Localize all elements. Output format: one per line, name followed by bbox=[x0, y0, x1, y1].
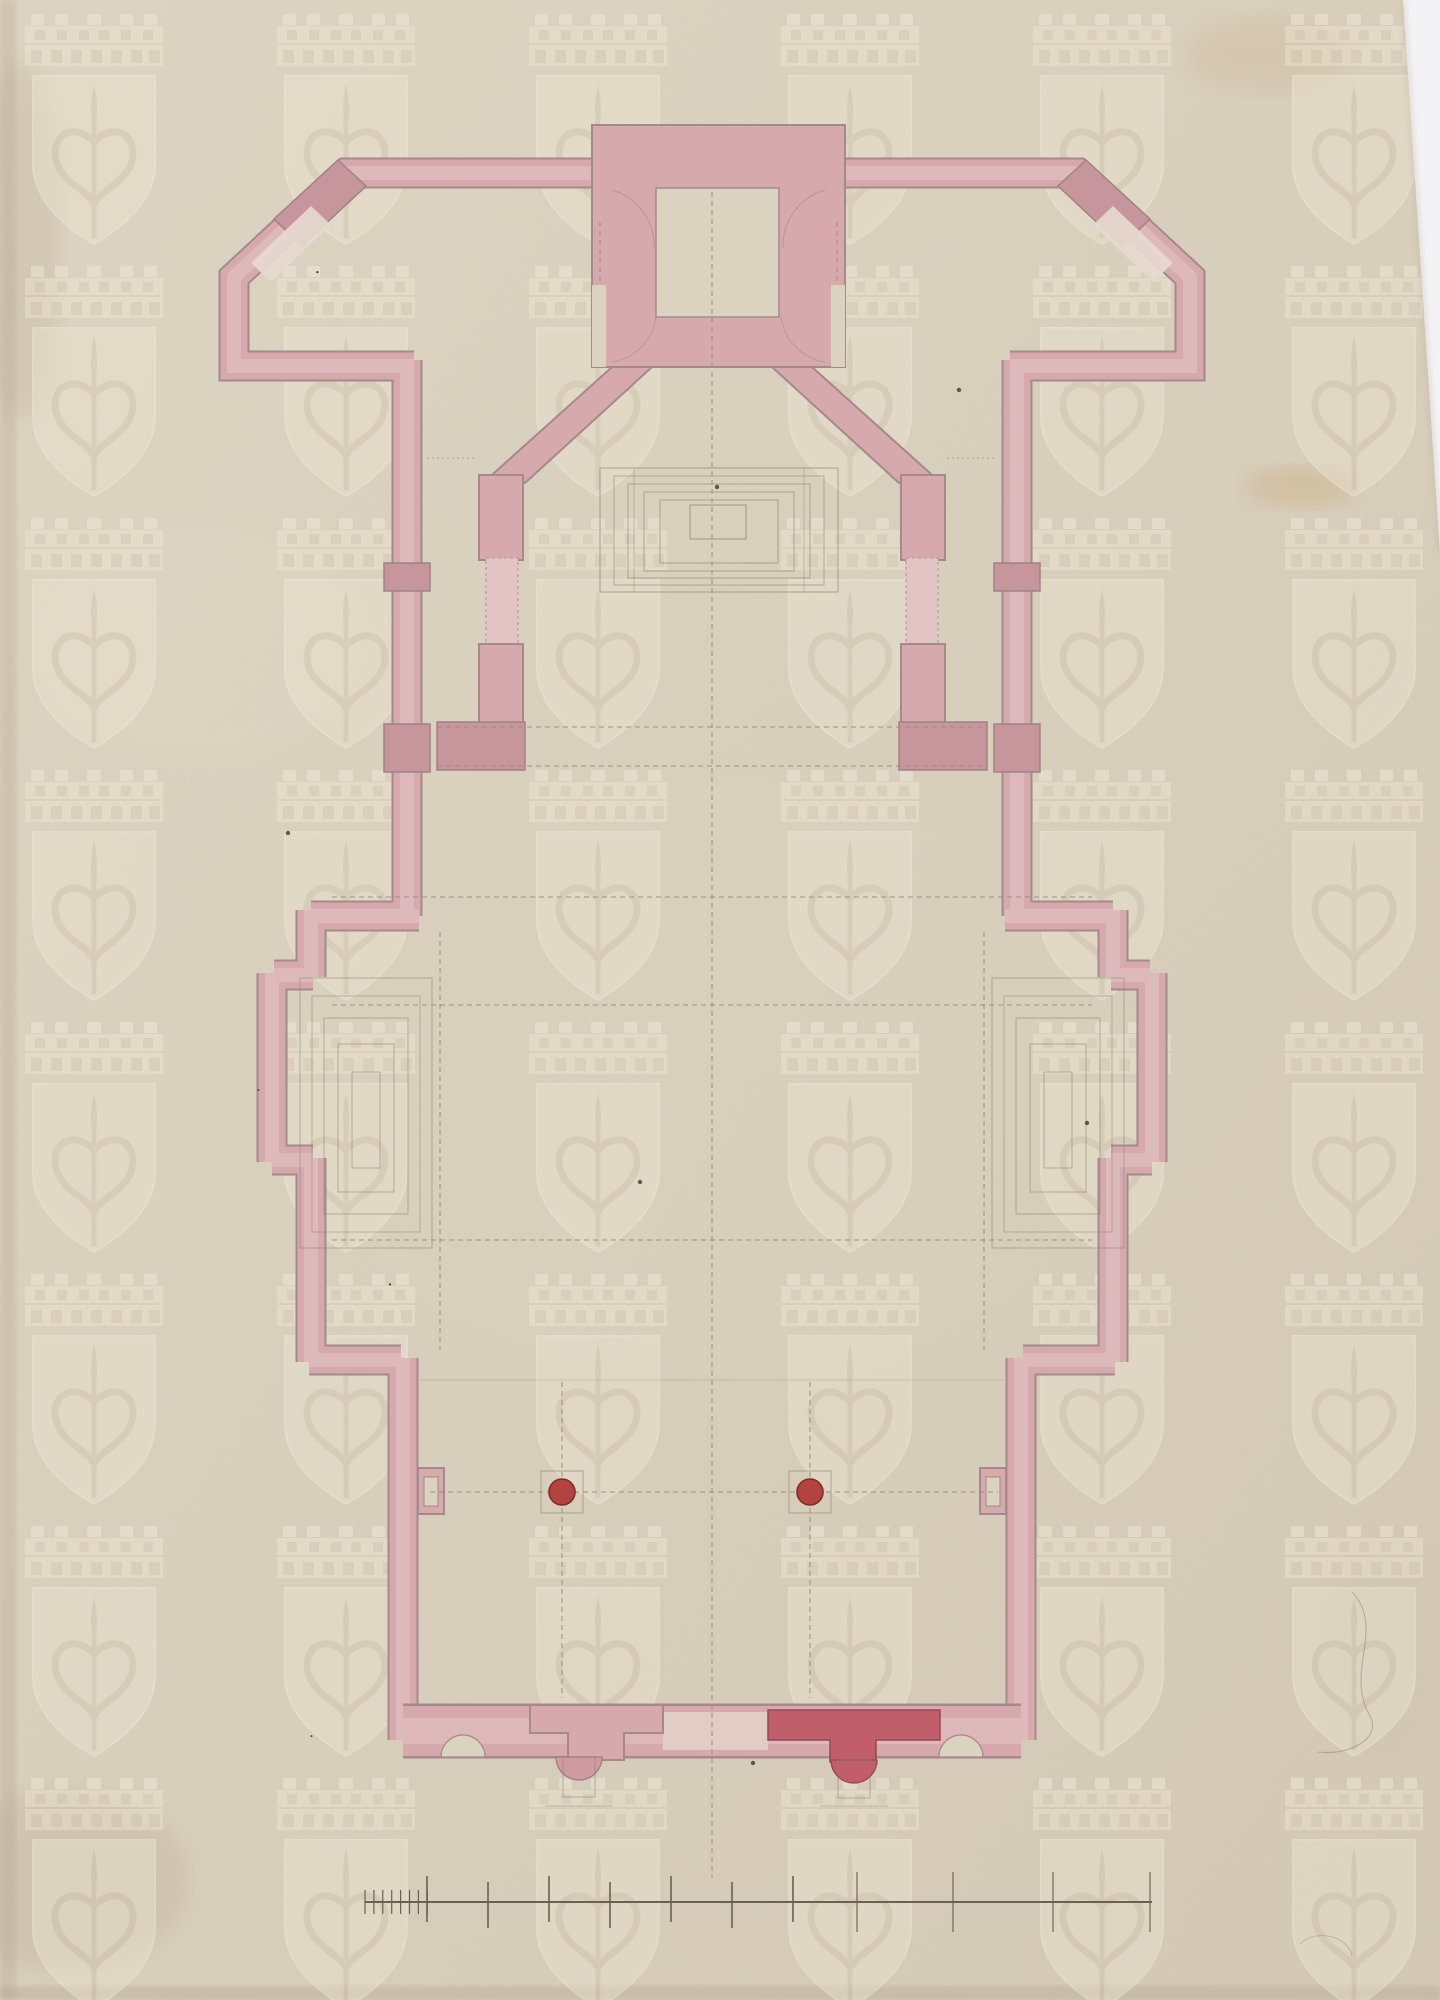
left-outer-wall-pier bbox=[384, 563, 430, 591]
paper-bottom-edge-shadow bbox=[0, 1986, 1440, 2000]
ink-speckle bbox=[286, 831, 290, 835]
watermark-shield-icon bbox=[25, 1778, 163, 2000]
paper-left-edge-shadow bbox=[0, 0, 16, 2000]
church-floor-plan-scan: scanned-architectural-drawing bbox=[0, 0, 1440, 2000]
main-door-opening bbox=[663, 1712, 768, 1750]
ink-speckle bbox=[258, 1089, 260, 1091]
left-hall-half-column bbox=[418, 1468, 444, 1514]
watermark-shield-icon bbox=[1285, 1778, 1423, 2000]
ink-speckle bbox=[1085, 1121, 1089, 1125]
scanned-drawing: scanned-architectural-drawing bbox=[0, 0, 1440, 2000]
watermark-shield-icon bbox=[781, 1778, 919, 2000]
vestibule-room bbox=[656, 188, 779, 317]
ink-speckle bbox=[311, 1735, 313, 1737]
ink-speckle bbox=[957, 388, 961, 392]
ink-speckle bbox=[638, 1180, 642, 1184]
narthex-block bbox=[592, 125, 845, 367]
ink-speckle bbox=[751, 1761, 755, 1765]
red-column bbox=[797, 1479, 823, 1505]
red-column bbox=[549, 1479, 575, 1505]
right-outer-wall-pier bbox=[994, 563, 1040, 591]
watermark-shield-icon bbox=[277, 1778, 415, 2000]
right-outer-wall-pier-2 bbox=[994, 724, 1040, 772]
right-hall-half-column bbox=[980, 1468, 1006, 1514]
ink-speckle bbox=[715, 485, 719, 489]
ink-speckle bbox=[389, 1284, 391, 1286]
left-outer-wall-pier-2 bbox=[384, 724, 430, 772]
ink-speckle bbox=[316, 271, 318, 273]
